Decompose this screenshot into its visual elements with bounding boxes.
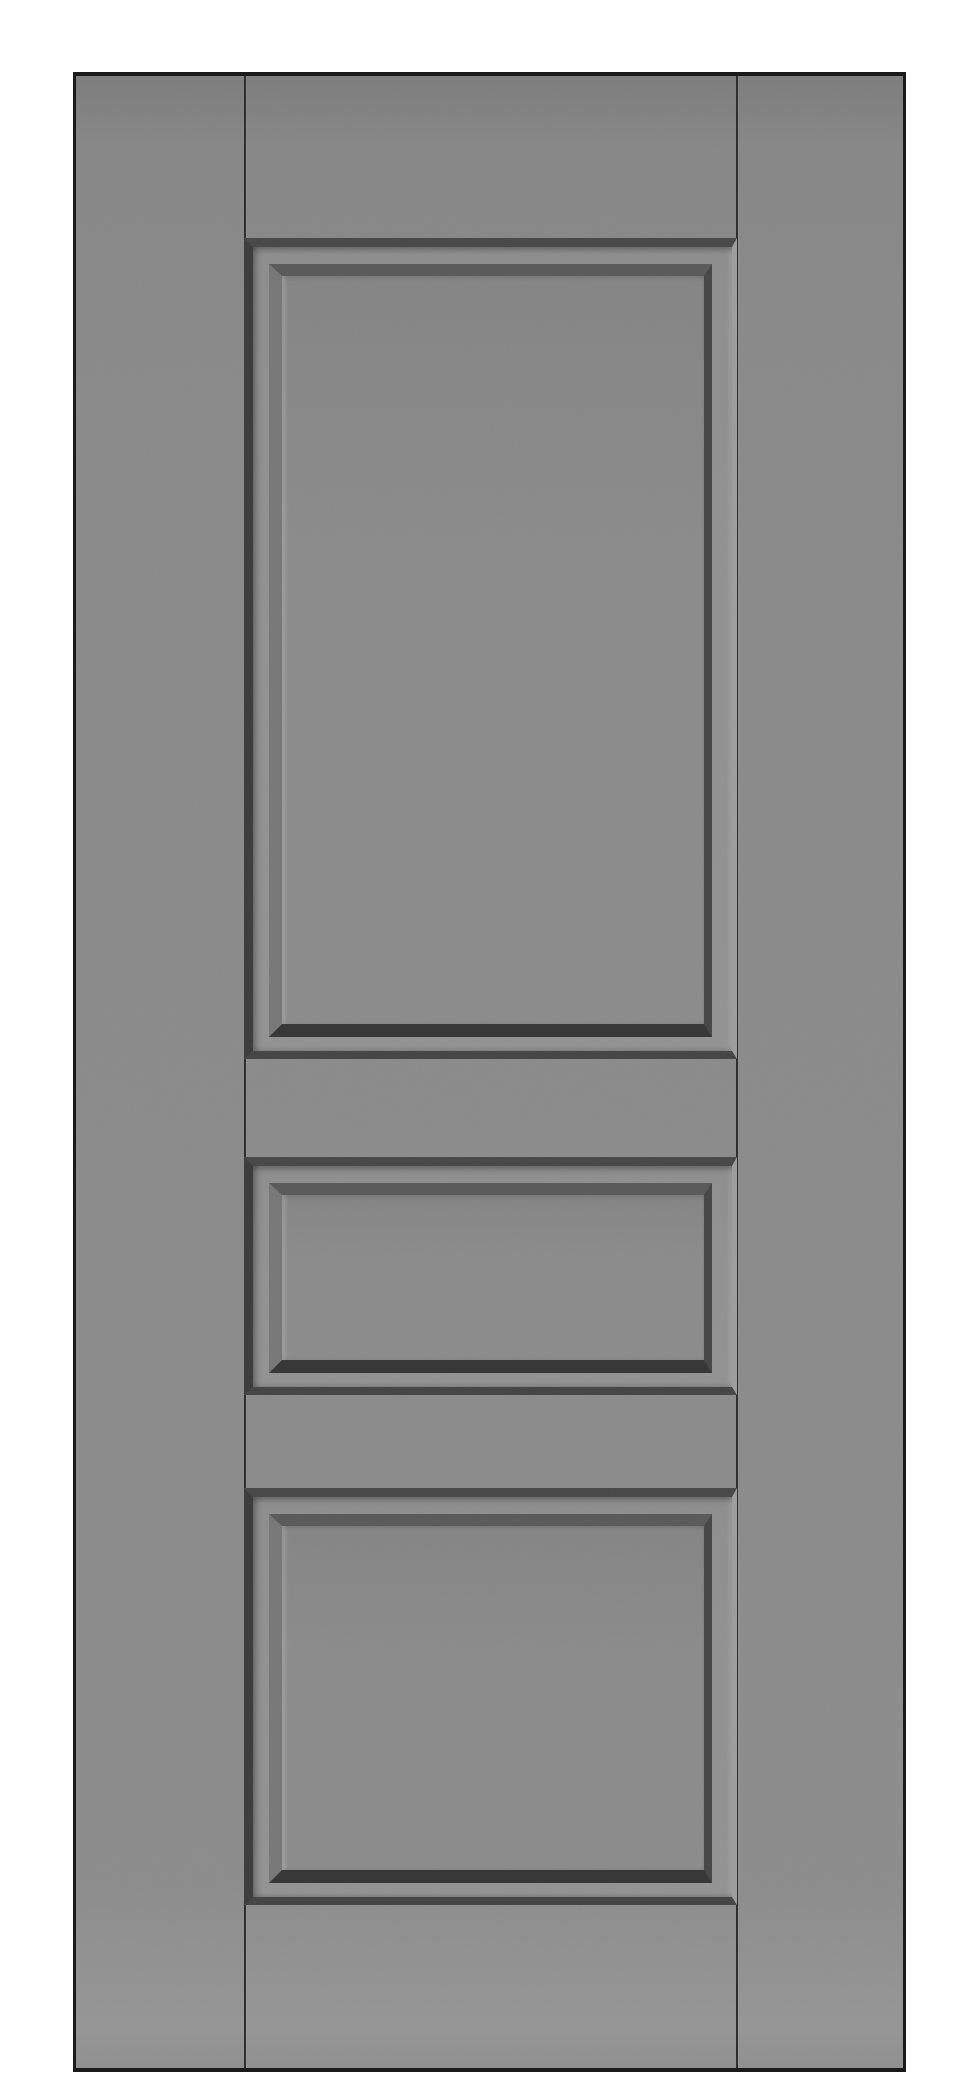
door-panel-top-face <box>282 276 704 1024</box>
door-panel-middle-recess <box>244 1157 737 1395</box>
door-product-photo <box>0 0 980 2100</box>
door-panel-bottom-recess <box>244 1488 737 1905</box>
door-panel-top-recess <box>244 238 737 1059</box>
door-panel-middle-face <box>282 1195 704 1360</box>
door <box>73 72 906 2072</box>
door-panel-bottom-bevel <box>269 1514 712 1883</box>
door-panel-middle-bevel <box>269 1183 712 1373</box>
door-panel-bottom-face <box>282 1526 704 1870</box>
door-panel-top-bevel <box>269 264 712 1037</box>
